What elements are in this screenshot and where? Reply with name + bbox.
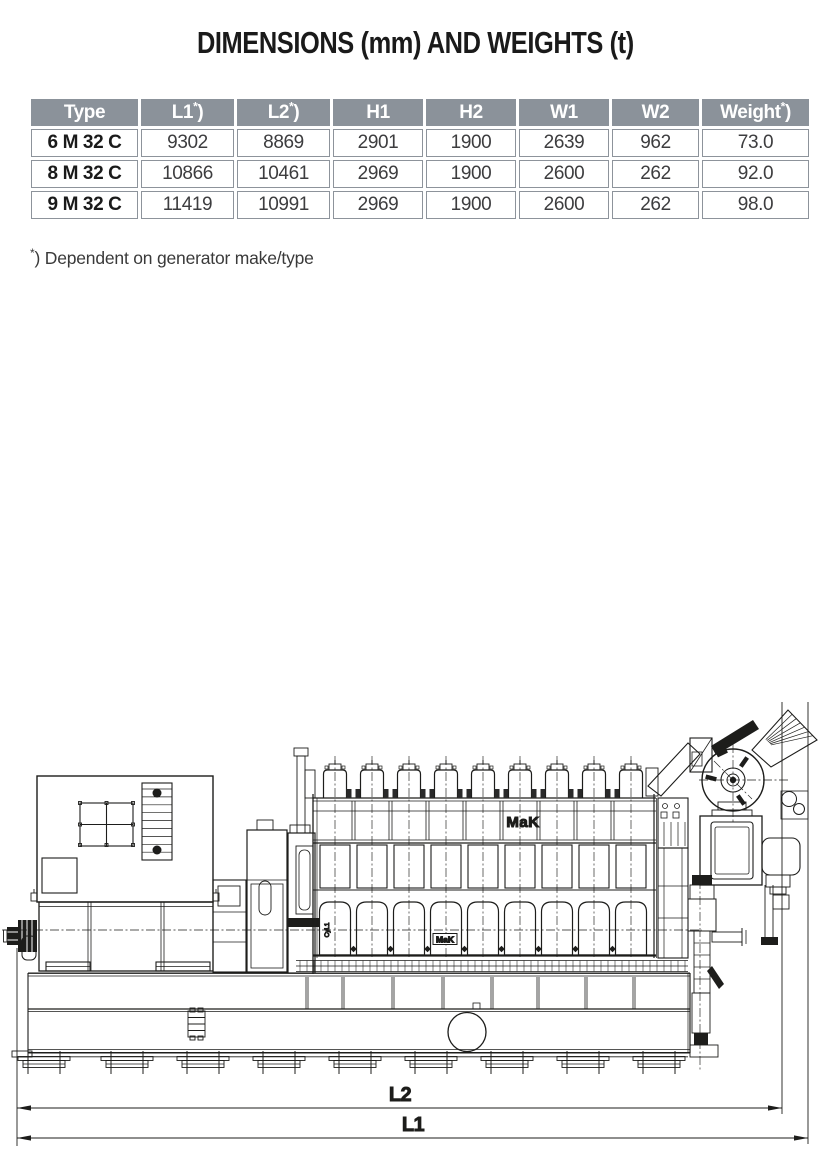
footnote-text: ) Dependent on generator make/type: [34, 248, 313, 268]
engine-block: [296, 760, 688, 974]
shaft-coupling: [4, 920, 38, 960]
turbocharger: [648, 710, 817, 945]
col-header-l2: L2*): [237, 99, 330, 126]
base-frame: [12, 973, 690, 1074]
base-ladder-detail: [188, 1008, 205, 1040]
cell-value: 2639: [519, 129, 609, 157]
table-row: 8 M 32 C108661046129691900260026292.0: [31, 160, 809, 188]
crankcase-panels: [320, 845, 646, 888]
cell-value: 10461: [237, 160, 330, 188]
cell-value: 73.0: [702, 129, 809, 157]
dimension-label-l2: L2: [389, 1084, 412, 1106]
col-header-w1: W1: [519, 99, 609, 126]
table-header-row: TypeL1*)L2*)H1H2W1W2Weight*): [31, 99, 809, 126]
air-filter-funnel: [752, 710, 817, 767]
manhole-oval: [448, 1013, 486, 1052]
cell-value: 2600: [519, 160, 609, 188]
col-header-h2: H2: [426, 99, 516, 126]
col-header-h1: H1: [333, 99, 423, 126]
cell-value: 8869: [237, 129, 330, 157]
col-header-w2: W2: [612, 99, 699, 126]
cell-value: 92.0: [702, 160, 809, 188]
cell-value: 2969: [333, 191, 423, 219]
table-row: 6 M 32 C9302886929011900263996273.0: [31, 129, 809, 157]
base-frame-panels: [306, 977, 635, 1009]
cell-value: 10866: [141, 160, 234, 188]
page-title-text: DIMENSIONS (mm) AND WEIGHTS (t): [197, 25, 634, 61]
cylinder-1-label: Cyl.1: [324, 922, 331, 937]
dimensions-table: TypeL1*)L2*)H1H2W1W2Weight*) 6 M 32 C930…: [28, 96, 812, 222]
cell-value: 11419: [141, 191, 234, 219]
dimension-label-l1: L1: [402, 1114, 425, 1136]
cell-value: 1900: [426, 191, 516, 219]
cell-value: 98.0: [702, 191, 809, 219]
dimension-l2: L2: [17, 1084, 782, 1111]
louver-strip: [142, 789, 172, 852]
cell-value: 1900: [426, 160, 516, 188]
cell-value: 2600: [519, 191, 609, 219]
mounting-feet: [18, 1051, 685, 1074]
dimensions-table-wrap: TypeL1*)L2*)H1H2W1W2Weight*) 6 M 32 C930…: [28, 96, 812, 222]
table-row: 9 M 32 C114191099129691900260026298.0: [31, 191, 809, 219]
page-title: DIMENSIONS (mm) AND WEIGHTS (t): [0, 24, 830, 61]
pump-tower: [688, 875, 746, 1057]
cell-value: 2969: [333, 160, 423, 188]
mak-logo-large: MaK: [506, 814, 539, 831]
dimension-lines: L2 L1: [17, 702, 808, 1146]
cell-value: 2901: [333, 129, 423, 157]
flywheel-housing: [247, 748, 320, 973]
cell-value: 10991: [237, 191, 330, 219]
cell-value: 1900: [426, 129, 516, 157]
cell-value: 9302: [141, 129, 234, 157]
cell-value: 262: [612, 160, 699, 188]
exhaust-outlet-flange: [781, 791, 808, 819]
col-header-l1: L1*): [141, 99, 234, 126]
table-body: 6 M 32 C9302886929011900263996273.08 M 3…: [31, 129, 809, 219]
col-header-type: Type: [31, 99, 138, 126]
dimension-l1: L1: [17, 1114, 808, 1141]
mak-logo-small: MaK: [436, 935, 455, 945]
cell-type: 8 M 32 C: [31, 160, 138, 188]
cell-value: 962: [612, 129, 699, 157]
genset-engineering-drawing: MaK MaK Cyl.1 L2 L1: [0, 690, 830, 1161]
col-header-weight: Weight*): [702, 99, 809, 126]
footnote: *) Dependent on generator make/type: [30, 246, 314, 269]
cell-value: 262: [612, 191, 699, 219]
generator: [4, 776, 247, 972]
cell-type: 6 M 32 C: [31, 129, 138, 157]
cell-type: 9 M 32 C: [31, 191, 138, 219]
